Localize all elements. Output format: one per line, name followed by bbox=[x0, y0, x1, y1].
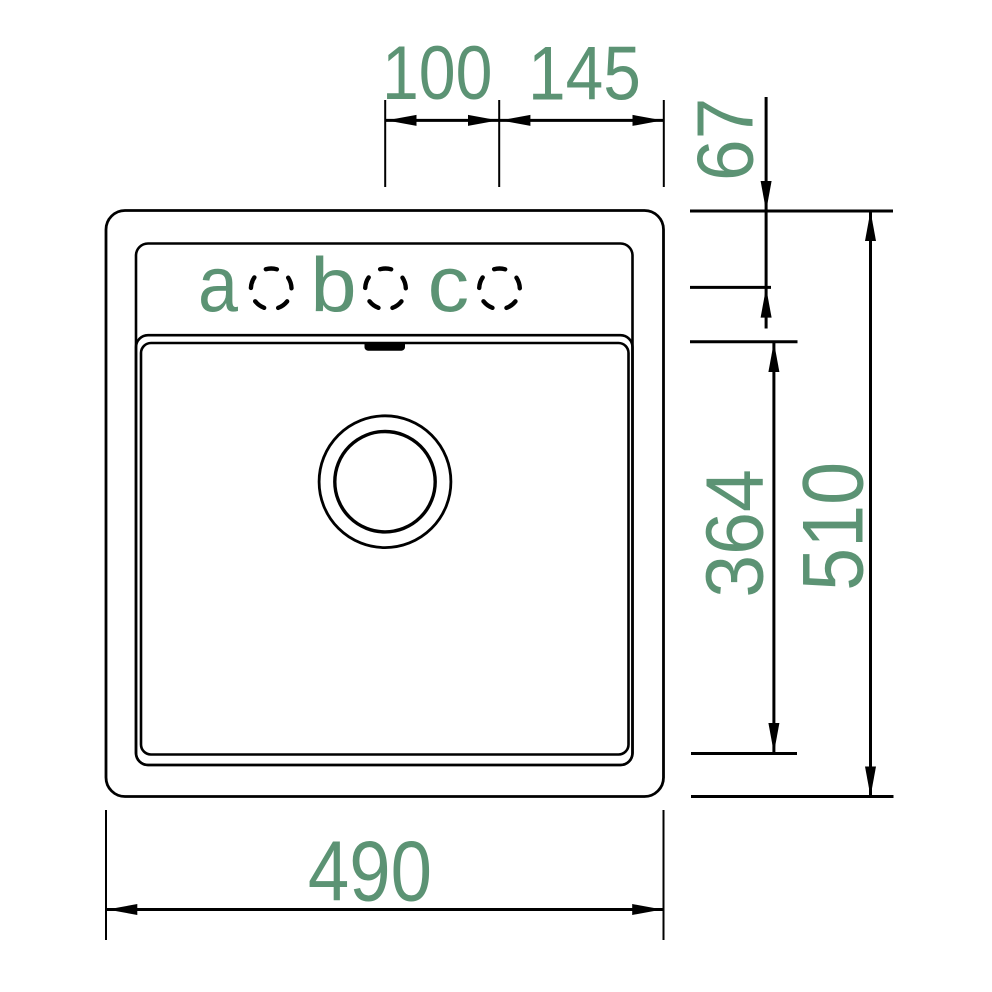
svg-text:510: 510 bbox=[786, 462, 882, 591]
svg-text:145: 145 bbox=[528, 32, 641, 117]
svg-text:b: b bbox=[310, 241, 356, 327]
svg-text:100: 100 bbox=[382, 31, 492, 116]
svg-text:490: 490 bbox=[308, 824, 432, 919]
svg-text:364: 364 bbox=[688, 469, 780, 598]
svg-text:c: c bbox=[428, 241, 469, 329]
svg-text:a: a bbox=[198, 241, 238, 329]
svg-text:67: 67 bbox=[681, 98, 770, 181]
